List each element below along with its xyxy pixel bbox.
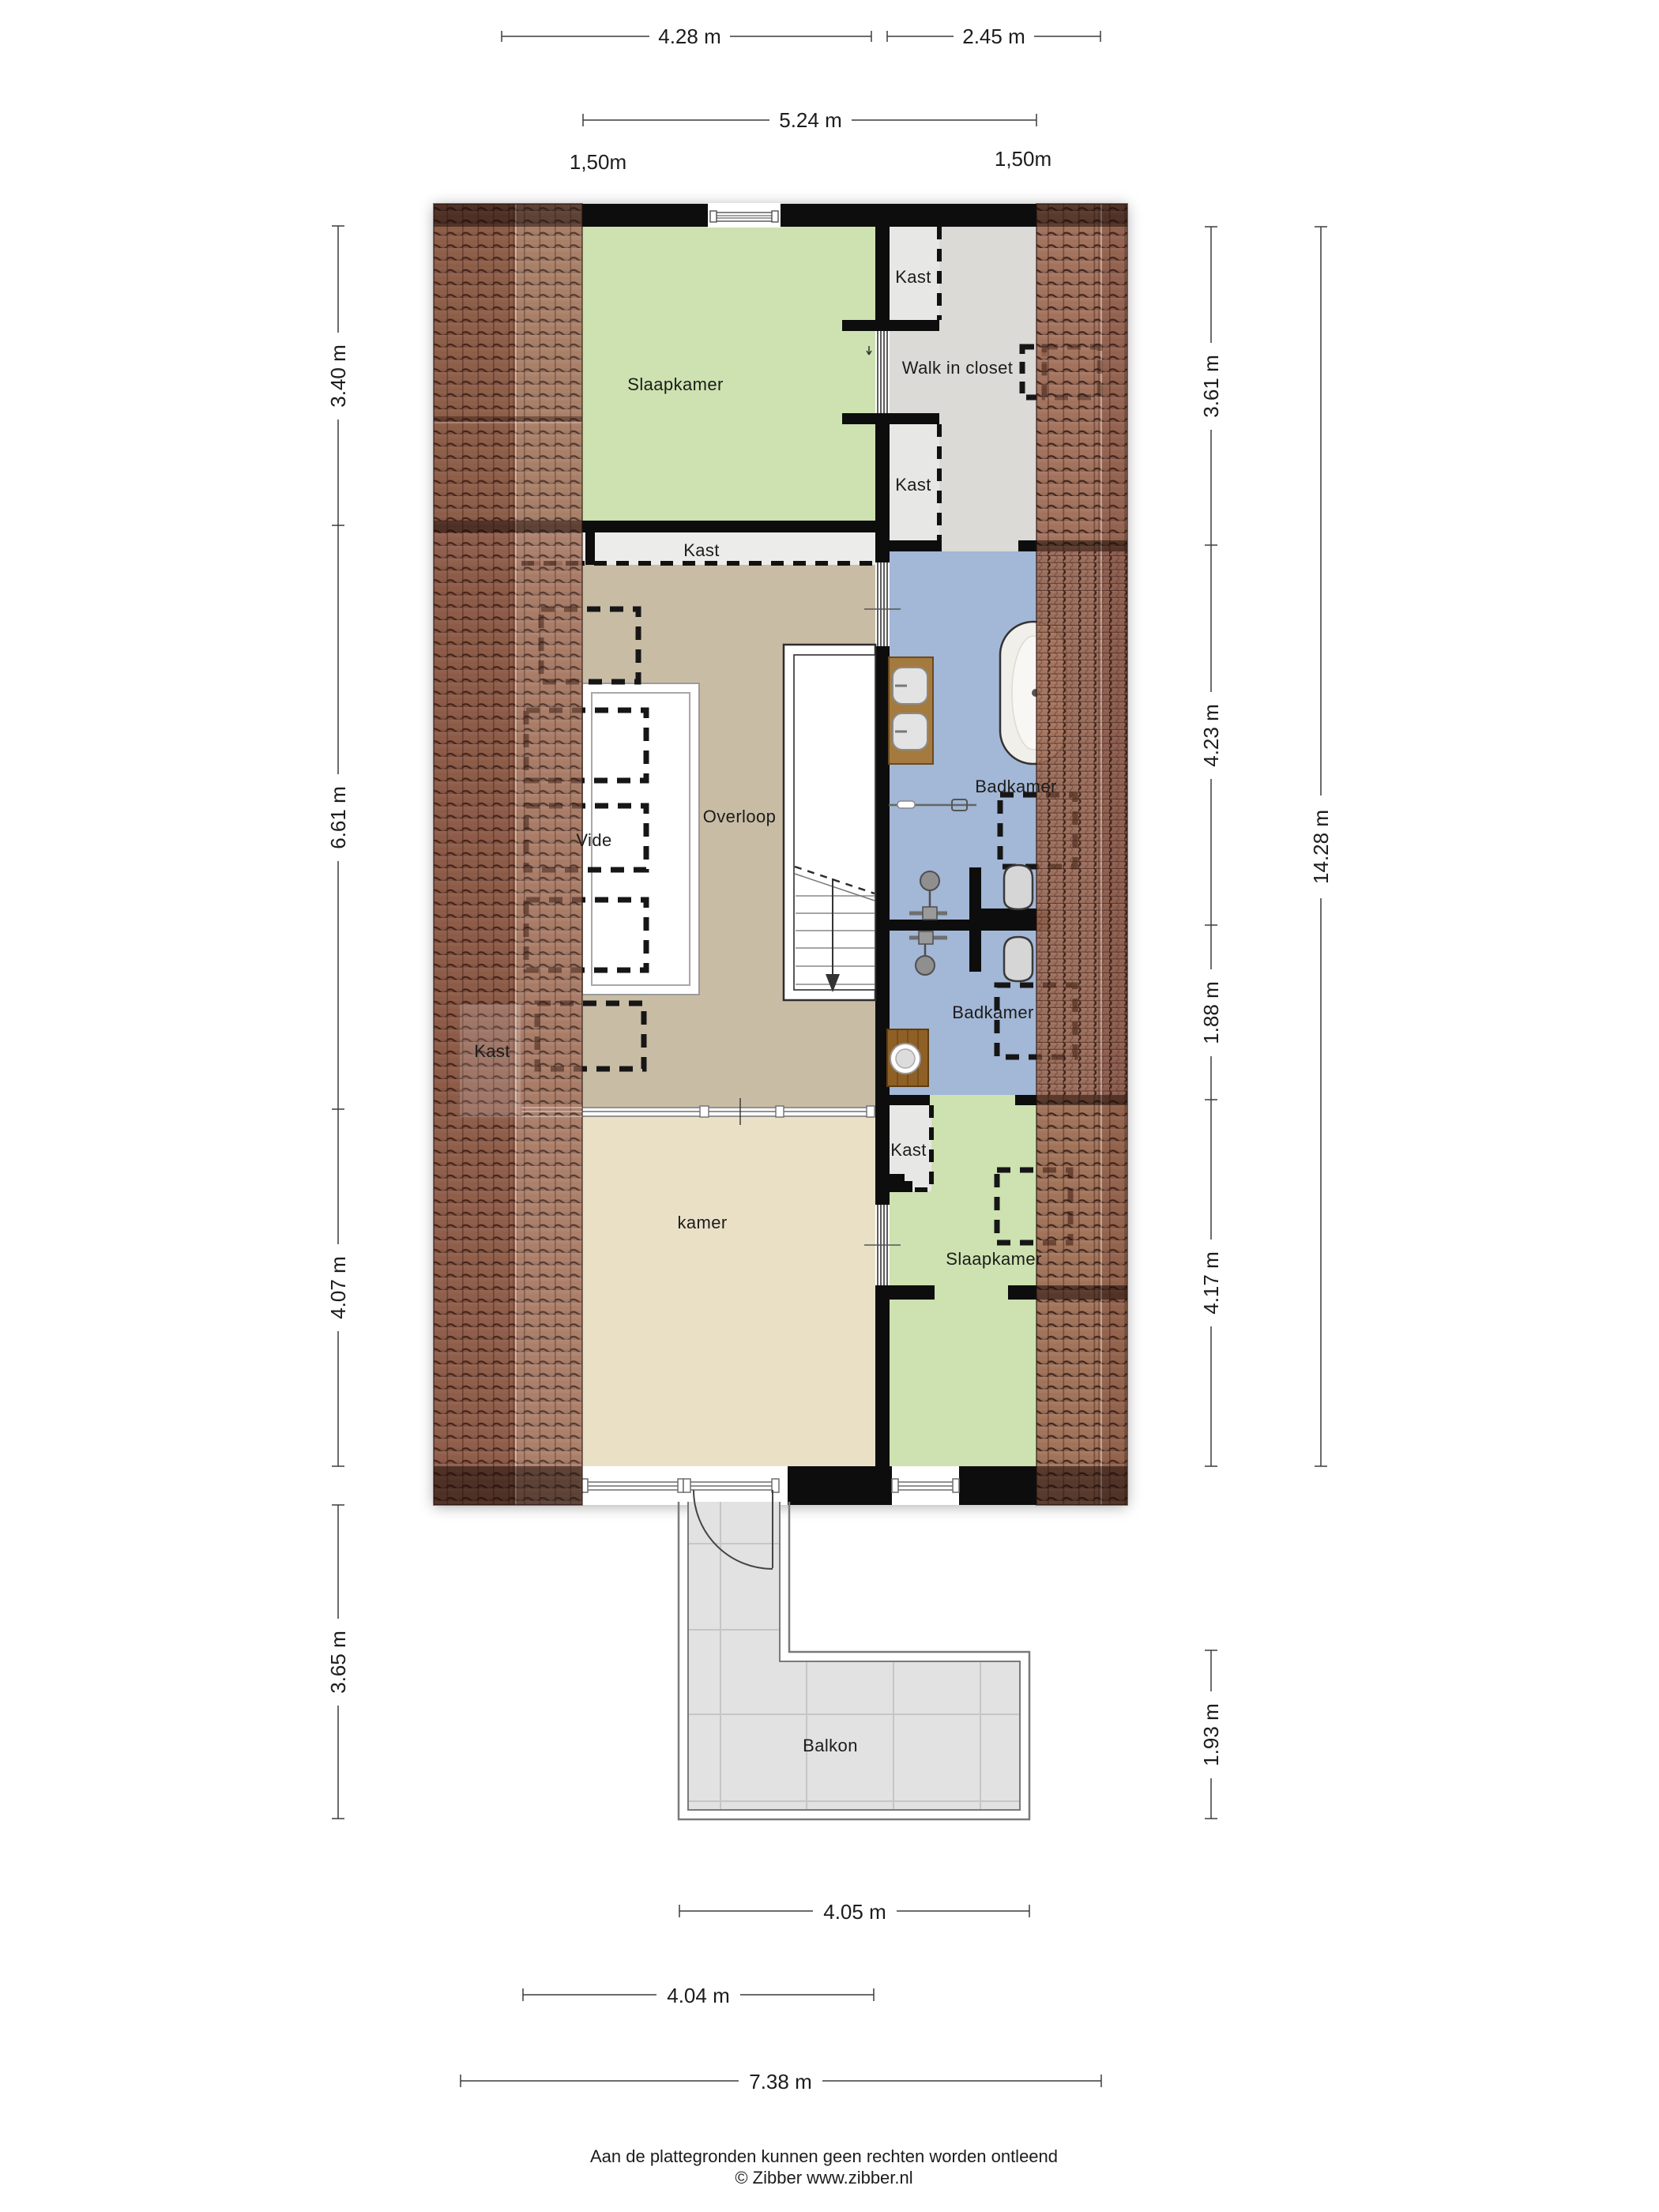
svg-text:4.23 m: 4.23 m (1199, 704, 1223, 767)
svg-text:Kast: Kast (895, 267, 931, 287)
svg-text:Badkamer: Badkamer (975, 777, 1056, 796)
svg-text:kamer: kamer (677, 1213, 727, 1232)
svg-text:1.88 m: 1.88 m (1199, 981, 1223, 1044)
svg-text:Kast: Kast (890, 1140, 927, 1160)
svg-text:4.17 m: 4.17 m (1199, 1251, 1223, 1315)
svg-text:1.93 m: 1.93 m (1199, 1703, 1223, 1766)
svg-text:5.24 m: 5.24 m (779, 108, 842, 132)
svg-text:4.05 m: 4.05 m (823, 1900, 886, 1924)
svg-text:Overloop: Overloop (703, 807, 776, 826)
svg-text:3.65 m: 3.65 m (326, 1631, 350, 1694)
svg-text:14.28 m: 14.28 m (1309, 810, 1333, 884)
svg-text:1,50m: 1,50m (995, 147, 1051, 171)
svg-text:Vide: Vide (576, 830, 611, 850)
svg-text:Kast: Kast (895, 475, 931, 495)
svg-text:Aan de plattegronden kunnen ge: Aan de plattegronden kunnen geen rechten… (590, 2146, 1058, 2166)
svg-text:3.61 m: 3.61 m (1199, 355, 1223, 418)
svg-text:Kast: Kast (474, 1041, 510, 1061)
svg-text:4.28 m: 4.28 m (658, 24, 721, 48)
svg-text:2.45 m: 2.45 m (962, 24, 1025, 48)
svg-text:Badkamer: Badkamer (952, 1003, 1033, 1022)
svg-text:7.38 m: 7.38 m (749, 2070, 812, 2093)
svg-text:Slaapkamer: Slaapkamer (946, 1249, 1041, 1269)
svg-text:6.61 m: 6.61 m (326, 786, 350, 849)
svg-text:Balkon: Balkon (803, 1736, 858, 1755)
svg-text:4.04 m: 4.04 m (667, 1984, 730, 2007)
svg-text:Walk in closet: Walk in closet (902, 358, 1014, 378)
svg-text:4.07 m: 4.07 m (326, 1256, 350, 1319)
svg-text:Kast: Kast (683, 540, 720, 560)
svg-text:Slaapkamer: Slaapkamer (627, 374, 723, 394)
svg-text:© Zibber www.zibber.nl: © Zibber www.zibber.nl (735, 2168, 912, 2188)
svg-text:3.40 m: 3.40 m (326, 344, 350, 408)
svg-text:1,50m: 1,50m (570, 150, 626, 174)
